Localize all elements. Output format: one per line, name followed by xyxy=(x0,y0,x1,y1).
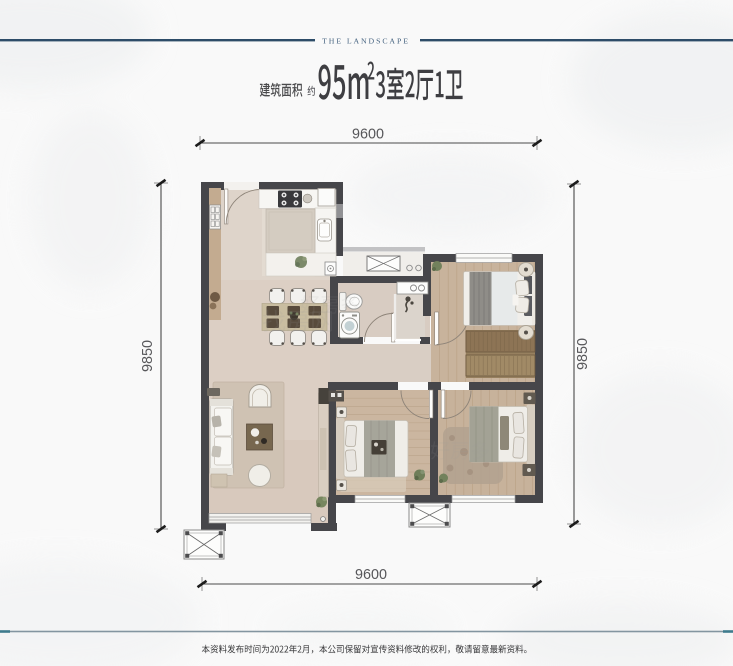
svg-text:9850: 9850 xyxy=(575,338,591,370)
svg-text:9850: 9850 xyxy=(140,340,156,372)
svg-text:9600: 9600 xyxy=(355,566,387,583)
svg-text:9600: 9600 xyxy=(352,126,384,143)
svg-text:THE LANDSCAPE: THE LANDSCAPE xyxy=(322,37,410,46)
